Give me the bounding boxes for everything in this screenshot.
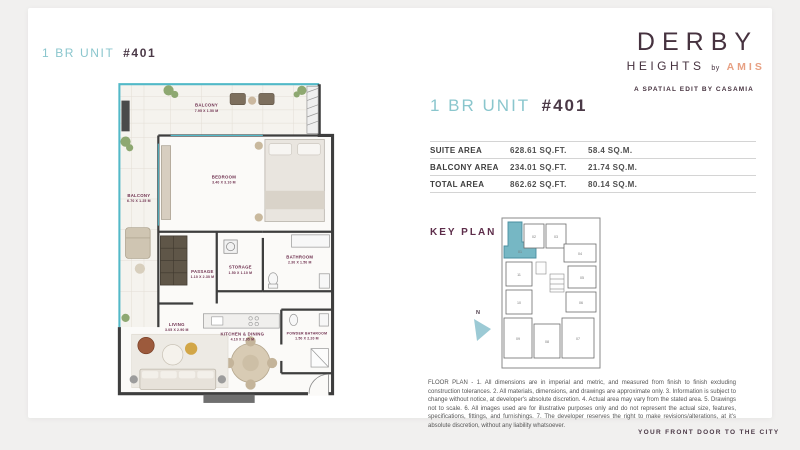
washer: [224, 240, 237, 253]
key-plan-unit-label: 03: [554, 235, 558, 239]
area-sqm: 21.74 SQ.M.: [588, 163, 756, 172]
key-plan-unit-label: 04: [578, 252, 582, 256]
page: 1 BR UNIT #401: [0, 0, 800, 450]
brand-name: DERBY: [618, 28, 770, 57]
unit-title-prefix: 1 BR UNIT: [430, 96, 530, 115]
floorplan-title-prefix: 1 BR UNIT: [42, 46, 114, 60]
area-table: SUITE AREA 628.61 SQ.FT. 58.4 SQ.M. BALC…: [430, 141, 756, 193]
area-sqm: 58.4 SQ.M.: [588, 146, 756, 155]
floorplan-title: 1 BR UNIT #401: [42, 46, 156, 60]
unit-title: 1 BR UNIT #401: [430, 96, 587, 116]
brand-subline: HEIGHTS by AMIS: [618, 59, 770, 73]
kitchen-counter: [203, 314, 279, 328]
brand-by: by: [711, 65, 719, 72]
key-plan-unit-label: 01: [518, 250, 522, 254]
key-plan-unit-label: 06: [579, 301, 583, 305]
room-label: PASSAGE: [191, 269, 214, 274]
wall-accent-block: [121, 101, 129, 132]
dresser-unit: [160, 236, 187, 285]
north-arrow-icon: [474, 319, 491, 341]
table-row: TOTAL AREA 862.62 SQ.FT. 80.14 SQ.M.: [430, 175, 756, 193]
area-sqft: 234.01 SQ.FT.: [510, 163, 588, 172]
room-dims: 3.05 X 2.90 M: [165, 328, 189, 332]
brand-tagline: A SPATIAL EDIT BY CASAMIA: [618, 86, 770, 93]
key-plan-map: 01 02 03 04 05 06 11 10 09 08 07 N: [466, 216, 606, 376]
room-dims: 1.10 X 2.30 M: [191, 275, 215, 279]
room-dims: 6.70 X 1.25 M: [127, 199, 151, 203]
room-dims: 4.10 X 2.95 M: [231, 337, 255, 341]
room-label: BALCONY: [195, 103, 218, 108]
louver-strip: [307, 86, 318, 133]
area-label: TOTAL AREA: [430, 180, 510, 189]
area-sqft: 628.61 SQ.FT.: [510, 146, 588, 155]
area-sqm: 80.14 SQ.M.: [588, 180, 756, 189]
area-label: SUITE AREA: [430, 146, 510, 155]
entry-stoop: [203, 395, 254, 403]
key-plan-unit-label: 11: [517, 273, 521, 277]
room-dims: 2.30 X 1.50 M: [288, 261, 312, 265]
room-label: BATHROOM: [286, 254, 313, 259]
area-label: BALCONY AREA: [430, 163, 510, 172]
gold-side-table: [185, 342, 197, 354]
room-dims: 1.50 X 1.10 M: [229, 271, 253, 275]
key-plan-unit-label: 02: [532, 235, 536, 239]
room-dims: 1.50 X 2.20 M: [295, 336, 319, 340]
room-label: KITCHEN & DINING: [221, 331, 265, 336]
brand-heights: HEIGHTS: [627, 59, 705, 73]
accent-chair: [138, 337, 154, 353]
wardrobe: [161, 146, 170, 220]
room-dims: 3.40 X 3.10 M: [212, 181, 236, 185]
key-plan-unit-label: 07: [576, 337, 580, 341]
room-label: STORAGE: [229, 265, 252, 270]
room-label: BEDROOM: [212, 174, 236, 179]
room-dims: 7.95 X 1.50 M: [195, 109, 219, 113]
key-plan-unit-label: 05: [580, 276, 584, 280]
room-label: POWDER BATHROOM: [287, 331, 328, 335]
bed: [255, 140, 325, 222]
key-plan-unit-label: 08: [545, 340, 549, 344]
key-plan-unit-label: 10: [517, 301, 521, 305]
disclaimer-text: FLOOR PLAN - 1. All dimensions are in im…: [428, 379, 736, 430]
sofa: [130, 369, 226, 389]
table-row: BALCONY AREA 234.01 SQ.FT. 21.74 SQ.M.: [430, 158, 756, 175]
table-row: SUITE AREA 628.61 SQ.FT. 58.4 SQ.M.: [430, 141, 756, 158]
room-label: BALCONY: [127, 193, 150, 198]
area-sqft: 862.62 SQ.FT.: [510, 180, 588, 189]
floorplan-drawing: BALCONY 7.95 X 1.50 M BEDROOM 3.40 X 3.1…: [108, 76, 346, 406]
unit-title-number: #401: [542, 96, 588, 115]
brand-amis: AMIS: [727, 61, 765, 73]
key-plan-unit-label: 09: [516, 337, 520, 341]
brand-logo: DERBY HEIGHTS by AMIS A SPATIAL EDIT BY …: [618, 28, 770, 93]
room-label: LIVING: [169, 322, 185, 327]
coffee-table: [162, 345, 182, 365]
footer-tagline: YOUR FRONT DOOR TO THE CITY: [638, 429, 780, 436]
floorplan-title-number: #401: [123, 46, 156, 60]
north-label: N: [476, 310, 480, 316]
